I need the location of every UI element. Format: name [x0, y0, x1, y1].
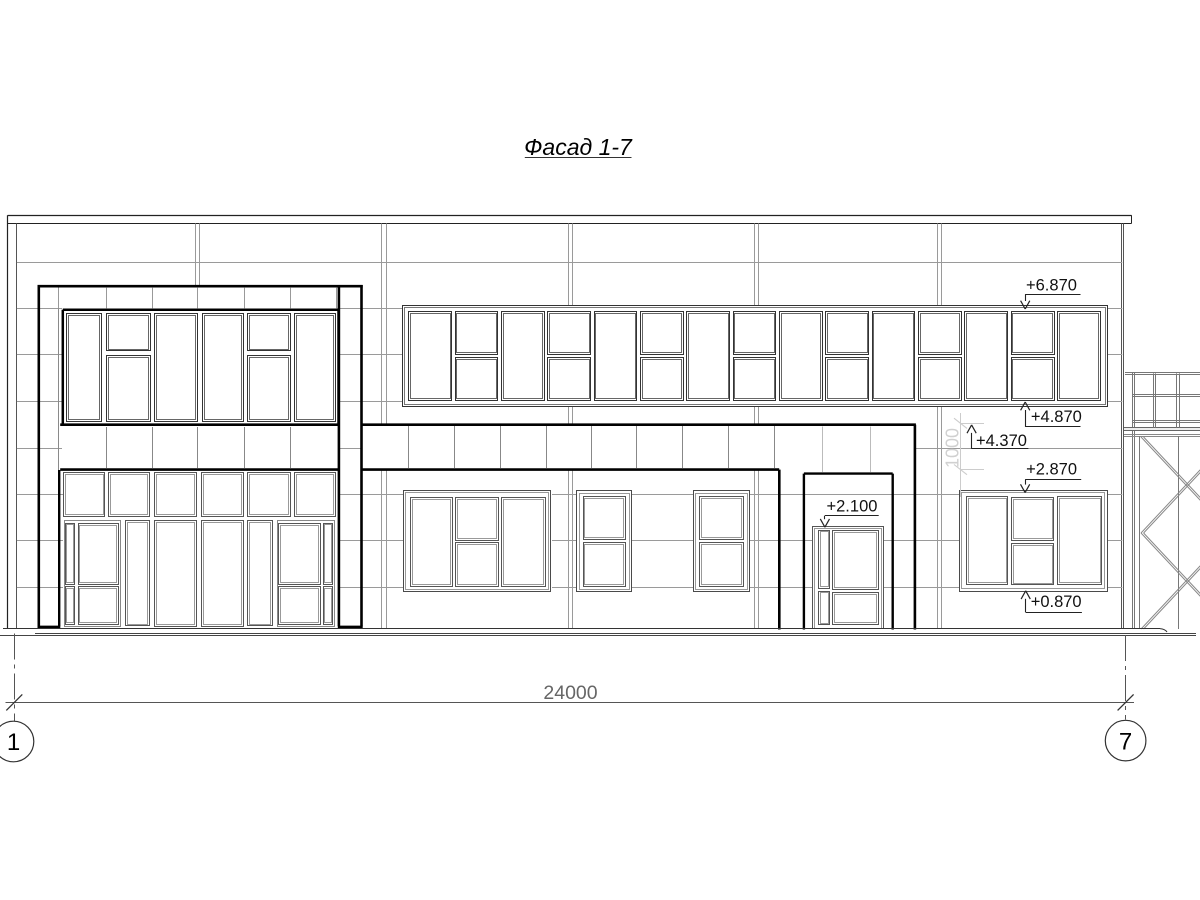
svg-text:1: 1 — [7, 729, 20, 756]
svg-text:24000: 24000 — [543, 682, 597, 704]
svg-text:+6.870: +6.870 — [1026, 277, 1077, 295]
svg-text:+4.870: +4.870 — [1031, 408, 1082, 426]
svg-text:7: 7 — [1119, 728, 1132, 755]
svg-text:1000: 1000 — [943, 428, 963, 468]
svg-text:+2.100: +2.100 — [827, 497, 878, 515]
svg-text:+0.870: +0.870 — [1031, 593, 1082, 611]
svg-text:+4.370: +4.370 — [976, 432, 1027, 450]
svg-text:Фасад 1-7: Фасад 1-7 — [524, 134, 633, 160]
svg-text:+2.870: +2.870 — [1026, 460, 1077, 478]
